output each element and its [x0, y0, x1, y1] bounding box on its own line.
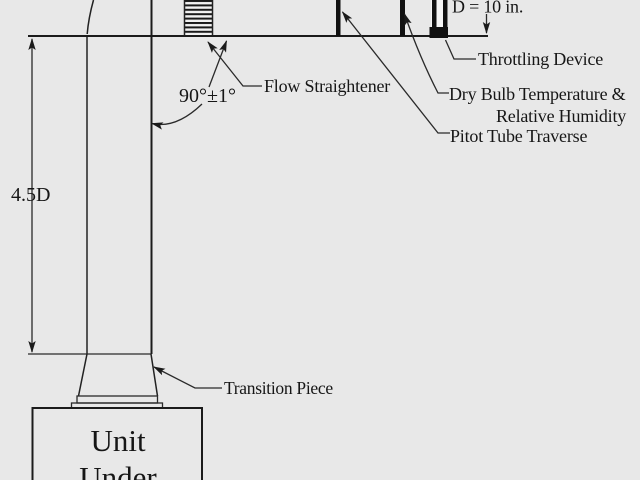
- pitot-tube-label: Pitot Tube Traverse: [450, 126, 587, 146]
- throttling-device-right-bar: [443, 0, 448, 28]
- flow-straightener-hatch: [184, 0, 213, 35]
- flow-straightener-block: [184, 0, 213, 35]
- throttling-device-block: [430, 27, 449, 38]
- dry-bulb-label-line2: Relative Humidity: [496, 106, 626, 126]
- transition-piece-label: Transition Piece: [224, 378, 333, 398]
- dry-bulb-probe: [400, 0, 405, 36]
- elbow-angle-label: 90°±1°: [179, 85, 236, 107]
- unit-label-line1: Unit: [90, 423, 146, 458]
- throttling-device-left-bar: [432, 0, 437, 28]
- duct-test-setup-diagram: D = 10 in. 4.5D 90°±1° Flow Straightener…: [0, 0, 640, 480]
- pitot-tube-probe: [336, 0, 341, 36]
- throttling-device-label: Throttling Device: [478, 49, 603, 69]
- unit-label-line2: Under: [79, 460, 157, 480]
- diagram-canvas: D = 10 in. 4.5D 90°±1° Flow Straightener…: [0, 0, 640, 480]
- duct-diameter-label: D = 10 in.: [452, 0, 523, 17]
- throttling-device-symbol: [430, 0, 449, 38]
- dry-bulb-label-line1: Dry Bulb Temperature &: [449, 84, 626, 104]
- duct-length-label: 4.5D: [11, 184, 50, 206]
- flow-straightener-label: Flow Straightener: [264, 76, 390, 96]
